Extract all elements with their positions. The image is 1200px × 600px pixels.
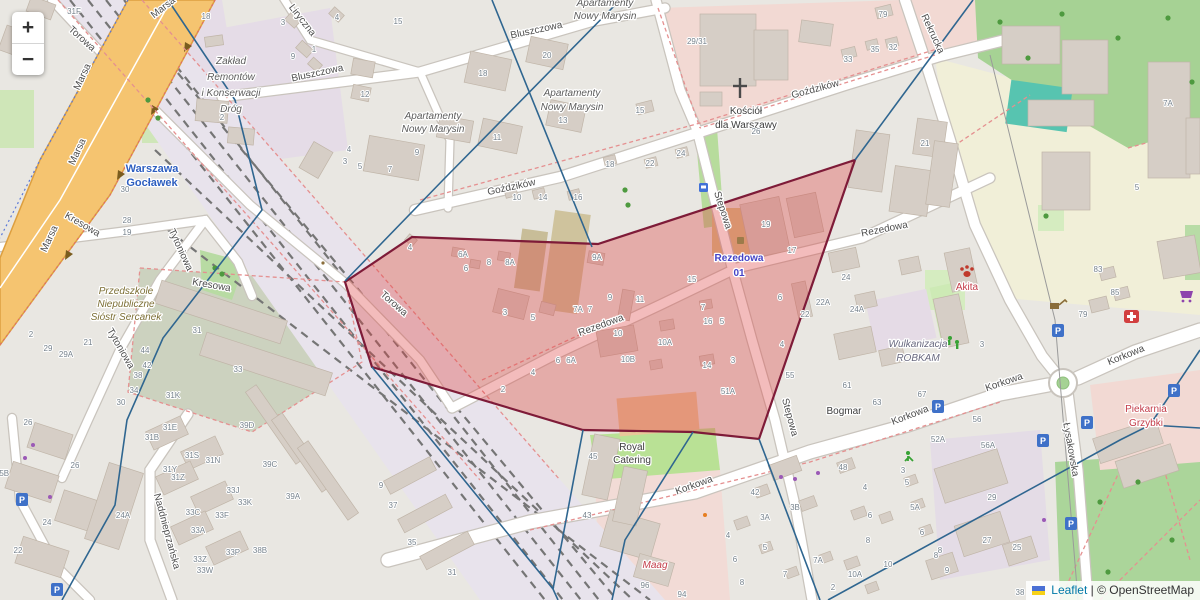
house-number: 21	[84, 338, 93, 347]
parking-icon: P	[1081, 416, 1093, 429]
house-number: 2	[501, 385, 506, 394]
house-number: 29	[988, 493, 997, 502]
poi-label: Kościół	[730, 106, 763, 117]
house-number: 5	[531, 313, 536, 322]
house-number: 3	[980, 340, 985, 349]
zoom-out-button[interactable]: −	[12, 44, 44, 75]
poi-label: Niepubliczne	[97, 299, 155, 310]
leaflet-link[interactable]: Leaflet	[1051, 583, 1087, 597]
poi-label: Zakład	[215, 56, 246, 67]
house-number: 9	[608, 293, 613, 302]
house-number: 33	[844, 55, 853, 64]
house-number: 67	[918, 390, 927, 399]
svg-text:P: P	[1055, 326, 1061, 336]
house-number: 52A	[931, 435, 946, 444]
house-number: 26	[24, 418, 33, 427]
house-number: 3	[901, 466, 906, 475]
house-number: 6	[920, 528, 925, 537]
house-number: 14	[539, 193, 548, 202]
house-number: 31E	[163, 423, 177, 432]
svg-text:P: P	[1040, 436, 1046, 446]
house-number: 33K	[238, 498, 253, 507]
poi-label: Warszawa	[126, 163, 180, 175]
house-number: 18	[606, 160, 615, 169]
house-number: 94	[678, 590, 687, 599]
house-number: 7	[701, 303, 706, 312]
poi-label: Maag	[642, 560, 667, 571]
poi-label: Rezedowa	[715, 253, 764, 264]
house-number: 4	[726, 531, 731, 540]
house-number: 48	[839, 463, 848, 472]
house-number: 33A	[191, 526, 206, 535]
svg-text:P: P	[19, 495, 25, 505]
house-number: 25	[1013, 543, 1022, 552]
house-number: 6	[556, 356, 561, 365]
house-number: 26	[752, 127, 761, 136]
house-number: 10A	[848, 570, 863, 579]
house-number: 39A	[286, 492, 301, 501]
house-number: 9A	[592, 253, 602, 262]
house-number: 38B	[253, 546, 267, 555]
parking-icon: P	[16, 493, 28, 506]
house-number: 18	[202, 12, 211, 21]
house-number: 44	[141, 346, 150, 355]
poi-label: ROBKAM	[896, 353, 940, 364]
pharmacy-icon	[1124, 310, 1139, 323]
house-number: 4	[780, 340, 785, 349]
house-number: 79	[1079, 310, 1088, 319]
house-number: 6	[868, 511, 873, 520]
house-number: 6	[464, 264, 469, 273]
poi-label: Royal	[619, 442, 645, 453]
attribution-separator: |	[1091, 583, 1094, 597]
house-number: 24A	[850, 305, 865, 314]
house-number: 28	[123, 216, 132, 225]
house-number: 7	[388, 165, 393, 174]
osm-link[interactable]: © OpenStreetMap	[1097, 583, 1194, 597]
house-number: 5	[720, 317, 725, 326]
house-number: 12	[361, 90, 370, 99]
house-number: 7A	[573, 305, 583, 314]
house-number: 31B	[145, 433, 159, 442]
house-number: 15	[394, 17, 403, 26]
house-number: 2	[29, 330, 34, 339]
house-number: 5A	[910, 503, 920, 512]
parking-icon: P	[1037, 434, 1049, 447]
house-number: 55	[786, 371, 795, 380]
house-number: 9	[291, 52, 296, 61]
house-number: 33C	[186, 508, 201, 517]
house-number: 3B	[790, 503, 800, 512]
house-number: 30	[121, 185, 130, 194]
house-number: 7	[588, 305, 593, 314]
house-number: 10B	[621, 355, 635, 364]
parking-icon: P	[51, 583, 63, 596]
roundabout-island	[1057, 377, 1069, 389]
poi-label: Nowy Marysin	[541, 102, 604, 113]
house-number: 10A	[658, 338, 673, 347]
house-number: 5	[1135, 183, 1140, 192]
house-number: 8	[740, 578, 745, 587]
house-number: 5	[905, 478, 910, 487]
zoom-in-button[interactable]: +	[12, 12, 44, 44]
house-number: 33F	[215, 511, 229, 520]
house-number: 35	[408, 538, 417, 547]
house-number: 10	[614, 329, 623, 338]
poi-label: Nowy Marysin	[574, 11, 637, 22]
house-number: 10	[513, 193, 522, 202]
house-number: 38	[134, 371, 143, 380]
tram-stop-icon	[737, 237, 744, 244]
house-number: 96	[641, 581, 650, 590]
house-number: 4	[408, 243, 413, 252]
house-number: 10	[884, 560, 893, 569]
fast-food-dot	[703, 513, 707, 517]
parking-icon: P	[932, 400, 944, 413]
house-number: 5	[358, 162, 363, 171]
house-number: 31F	[67, 7, 81, 16]
house-number: 56	[973, 415, 982, 424]
house-number: 24	[677, 149, 686, 158]
poi-label: Remontów	[207, 72, 256, 83]
house-number: 11	[493, 133, 502, 142]
house-number: 3	[731, 356, 736, 365]
house-number: 63	[873, 398, 882, 407]
poi-label: Bogmar	[826, 406, 862, 417]
poi-label: Sióstr Sercanek	[91, 312, 163, 323]
poi-label: Przedszkole	[99, 286, 154, 297]
house-number: 51A	[721, 387, 736, 396]
house-number: 21	[921, 139, 930, 148]
house-number: 31S	[185, 451, 199, 460]
house-number: 22	[801, 310, 810, 319]
svg-text:P: P	[54, 585, 60, 595]
house-number: 13	[559, 116, 568, 125]
house-number: 15	[636, 106, 645, 115]
poi-label: 01	[733, 268, 745, 279]
house-number: 29/31	[687, 37, 708, 46]
house-number: 4	[335, 13, 340, 22]
house-number: 7A	[813, 556, 823, 565]
house-number: 35	[871, 45, 880, 54]
house-number: 2	[831, 583, 836, 592]
house-number: 4	[347, 145, 352, 154]
house-number: 33Z	[193, 555, 207, 564]
house-number: 24	[43, 518, 52, 527]
house-number: 39D	[240, 421, 255, 430]
poi-label: Catering	[613, 455, 651, 466]
house-number: 38	[1016, 588, 1025, 597]
attribution-bar: Leaflet | © OpenStreetMap	[1026, 581, 1200, 600]
zoom-control: + −	[12, 12, 44, 75]
house-number: 8A	[505, 258, 515, 267]
house-number: 16	[704, 317, 713, 326]
house-number: 9	[415, 148, 420, 157]
house-number: 7A	[1163, 99, 1173, 108]
house-number: 56A	[981, 441, 996, 450]
bus-stop-icon	[699, 183, 708, 192]
house-number: 3A	[760, 513, 770, 522]
house-number: 33W	[197, 566, 214, 575]
house-number: 32	[889, 43, 898, 52]
house-number: 19	[123, 228, 132, 237]
house-number: 9	[379, 481, 384, 490]
poi-label: Apartamenty	[543, 88, 602, 99]
house-number: 16	[574, 193, 583, 202]
house-number: 85	[1111, 288, 1120, 297]
poi-label: Apartamenty	[404, 111, 463, 122]
house-number: 17	[788, 246, 797, 255]
poi-label: Nowy Marysin	[402, 124, 465, 135]
house-number: 31Z	[171, 473, 185, 482]
house-number: 31	[448, 568, 457, 577]
house-number: 22	[14, 546, 23, 555]
house-number: 31N	[206, 456, 221, 465]
house-number: 4	[531, 368, 536, 377]
house-number: 83	[1094, 265, 1103, 274]
poi-label: Wulkanizacja	[889, 339, 948, 350]
house-number: 8	[866, 536, 871, 545]
house-number: 61	[843, 381, 852, 390]
poi-label: Apartamenty	[576, 0, 635, 9]
svg-text:P: P	[1068, 519, 1074, 529]
house-number: 43	[583, 511, 592, 520]
house-number: 20	[543, 51, 552, 60]
poi-label: Akita	[956, 282, 979, 293]
house-number: 1	[312, 45, 317, 54]
parking-icon: P	[1065, 517, 1077, 530]
house-number: 3	[343, 157, 348, 166]
svg-text:P: P	[1171, 386, 1177, 396]
house-number: 6A	[458, 250, 468, 259]
poi-dot	[321, 261, 324, 264]
parking-icon: P	[1168, 384, 1180, 397]
house-number: 33	[234, 365, 243, 374]
house-number: 11	[636, 295, 645, 304]
house-number: 39C	[263, 460, 278, 469]
house-number: 6	[733, 555, 738, 564]
house-number: 2	[220, 113, 225, 122]
house-number: 42	[751, 488, 760, 497]
map-container[interactable]: MarsaMarsaMarsaMarsaTorowaTorowaLiryczna…	[0, 0, 1200, 600]
house-number: 26	[71, 461, 80, 470]
house-number: 24A	[116, 511, 131, 520]
house-number: 33P	[226, 548, 240, 557]
house-number: 9	[945, 566, 950, 575]
house-number: 34	[130, 386, 139, 395]
poi-label: Grzybki	[1129, 418, 1163, 429]
poi-label: dla Warszawy	[715, 120, 777, 131]
ukraine-flag-icon	[1032, 586, 1045, 595]
house-number: 22	[646, 159, 655, 168]
house-number: 45	[589, 452, 598, 461]
house-number: 5	[763, 543, 768, 552]
house-number: 3	[503, 308, 508, 317]
house-number: 6	[778, 293, 783, 302]
house-number: 6A	[566, 356, 576, 365]
house-number: 7	[783, 570, 788, 579]
house-number: 79	[879, 10, 888, 19]
svg-text:P: P	[1084, 418, 1090, 428]
house-number: 15	[688, 275, 697, 284]
house-number: 14	[703, 361, 712, 370]
house-number: 24	[842, 273, 851, 282]
house-number: 22A	[816, 298, 831, 307]
map-canvas[interactable]: MarsaMarsaMarsaMarsaTorowaTorowaLiryczna…	[0, 0, 1200, 600]
house-number: 30	[117, 398, 126, 407]
house-number: 29	[44, 344, 53, 353]
poi-label: i Konserwacji	[202, 88, 262, 99]
house-number: 31	[193, 326, 202, 335]
house-number: 33J	[227, 486, 240, 495]
house-number: 27	[983, 536, 992, 545]
house-number: 37	[389, 501, 398, 510]
house-number: 19	[762, 220, 771, 229]
house-number: 8	[938, 546, 943, 555]
house-number: 3	[281, 18, 286, 27]
house-number: 4	[863, 483, 868, 492]
house-number: 8	[487, 258, 492, 267]
house-number: 25B	[0, 469, 9, 478]
svg-text:P: P	[935, 402, 941, 412]
house-number: 29A	[59, 350, 74, 359]
poi-label: Piekarnia	[1125, 404, 1167, 415]
house-number: 42	[143, 361, 152, 370]
house-number: 31K	[166, 391, 181, 400]
parking-icon: P	[1052, 324, 1064, 337]
house-number: 18	[479, 69, 488, 78]
poi-label: Gocławek	[126, 177, 178, 189]
